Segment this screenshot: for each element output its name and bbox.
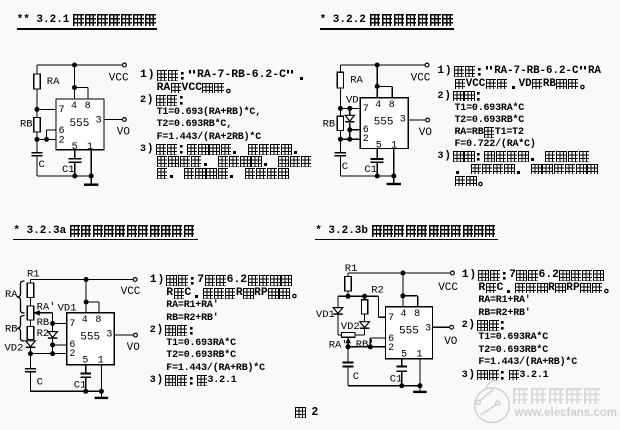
svg-text:7: 7 — [363, 104, 369, 115]
svg-text:RA: RA — [350, 74, 363, 86]
svg-text:VO: VO — [419, 127, 433, 139]
svg-text:8: 8 — [85, 101, 91, 112]
svg-text:VCC: VCC — [121, 286, 141, 298]
svg-text:555: 555 — [70, 118, 90, 130]
svg-text:555: 555 — [80, 332, 100, 344]
svg-text:4: 4 — [71, 101, 77, 112]
svg-text:VD2: VD2 — [341, 321, 360, 333]
svg-text:VCC: VCC — [109, 72, 129, 84]
svg-text:C1: C1 — [62, 164, 75, 176]
svg-text:555: 555 — [399, 326, 419, 338]
svg-text:3: 3 — [400, 114, 406, 125]
svg-text:1: 1 — [87, 142, 93, 153]
svg-text:RB': RB' — [356, 339, 375, 351]
svg-text:VD1: VD1 — [316, 309, 335, 321]
svg-text:R2: R2 — [371, 284, 384, 296]
svg-text:1: 1 — [391, 141, 397, 152]
svg-text:RA': RA' — [37, 302, 56, 314]
svg-text:R2: R2 — [37, 328, 50, 340]
svg-text:5: 5 — [72, 142, 78, 153]
svg-text:VD2: VD2 — [5, 343, 24, 355]
svg-text:C1: C1 — [390, 374, 403, 386]
svg-text:VD1: VD1 — [58, 303, 77, 315]
svg-text:C: C — [342, 161, 348, 173]
svg-text:7: 7 — [388, 313, 394, 324]
svg-text:2: 2 — [69, 349, 75, 360]
svg-text:2: 2 — [59, 135, 65, 146]
svg-text:VD: VD — [346, 95, 359, 107]
svg-text:1: 1 — [98, 356, 104, 367]
svg-text:8: 8 — [389, 100, 395, 111]
svg-text:RB: RB — [20, 118, 33, 130]
svg-text:2: 2 — [388, 343, 394, 354]
svg-text:5: 5 — [376, 141, 382, 152]
svg-text:4: 4 — [375, 100, 381, 111]
svg-text:RB: RB — [5, 324, 18, 336]
svg-text:8: 8 — [414, 309, 420, 320]
svg-text:C: C — [37, 377, 43, 389]
svg-text:3: 3 — [425, 323, 431, 334]
svg-text:R1: R1 — [27, 269, 40, 281]
svg-text:2: 2 — [363, 134, 369, 145]
svg-text:C1: C1 — [364, 164, 377, 176]
svg-text:VO: VO — [117, 127, 131, 139]
svg-text:7: 7 — [59, 105, 65, 116]
svg-text:C: C — [39, 159, 45, 171]
svg-text:4: 4 — [401, 309, 407, 320]
svg-text:RA: RA — [47, 76, 60, 88]
svg-text:C1: C1 — [74, 379, 87, 391]
svg-text:4: 4 — [82, 315, 88, 326]
svg-text:3: 3 — [106, 329, 112, 340]
svg-text:RB: RB — [323, 118, 336, 130]
svg-text:3: 3 — [96, 116, 102, 127]
svg-text:C: C — [353, 371, 359, 383]
svg-text:VO: VO — [444, 336, 458, 348]
svg-text:7: 7 — [69, 319, 75, 330]
svg-text:RA': RA' — [329, 340, 348, 352]
svg-text:5: 5 — [82, 356, 88, 367]
svg-text:8: 8 — [95, 315, 101, 326]
svg-text:VCC: VCC — [411, 72, 431, 84]
svg-text:R1: R1 — [345, 263, 358, 275]
svg-text:VO: VO — [127, 342, 141, 354]
svg-text:555: 555 — [374, 117, 394, 129]
svg-text:1: 1 — [417, 350, 423, 361]
svg-text:VCC: VCC — [438, 282, 458, 294]
svg-text:RA: RA — [5, 289, 18, 301]
svg-text:5: 5 — [401, 350, 407, 361]
